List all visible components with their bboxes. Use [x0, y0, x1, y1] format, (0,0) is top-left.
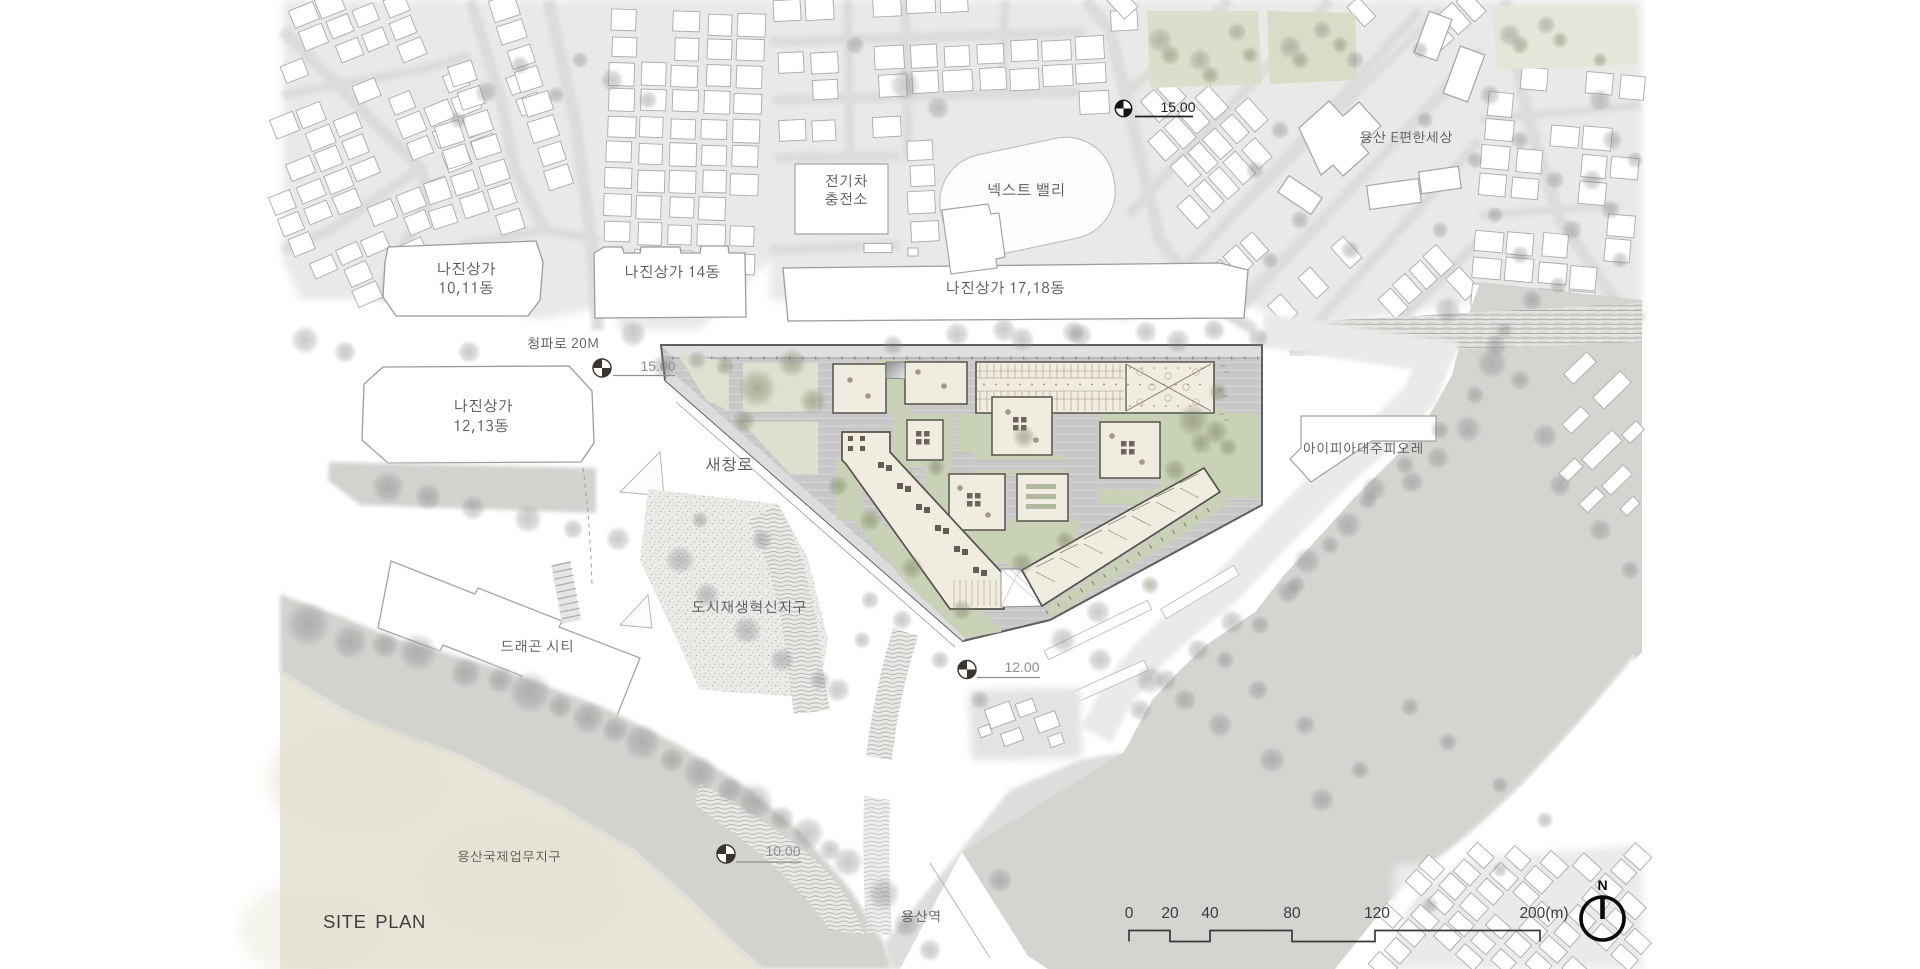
svg-text:12.00: 12.00 [1004, 659, 1039, 675]
svg-text:0: 0 [1125, 905, 1134, 922]
svg-text:20: 20 [1161, 905, 1179, 922]
svg-text:200(m): 200(m) [1519, 905, 1568, 922]
svg-text:15.00: 15.00 [1160, 99, 1195, 115]
svg-text:10.00: 10.00 [765, 843, 800, 859]
svg-text:120: 120 [1364, 905, 1390, 922]
svg-text:15.00: 15.00 [640, 358, 675, 374]
svg-text:SITE PLAN: SITE PLAN [323, 911, 426, 932]
svg-text:80: 80 [1283, 905, 1301, 922]
svg-text:40: 40 [1201, 905, 1219, 922]
svg-text:N: N [1597, 877, 1607, 893]
